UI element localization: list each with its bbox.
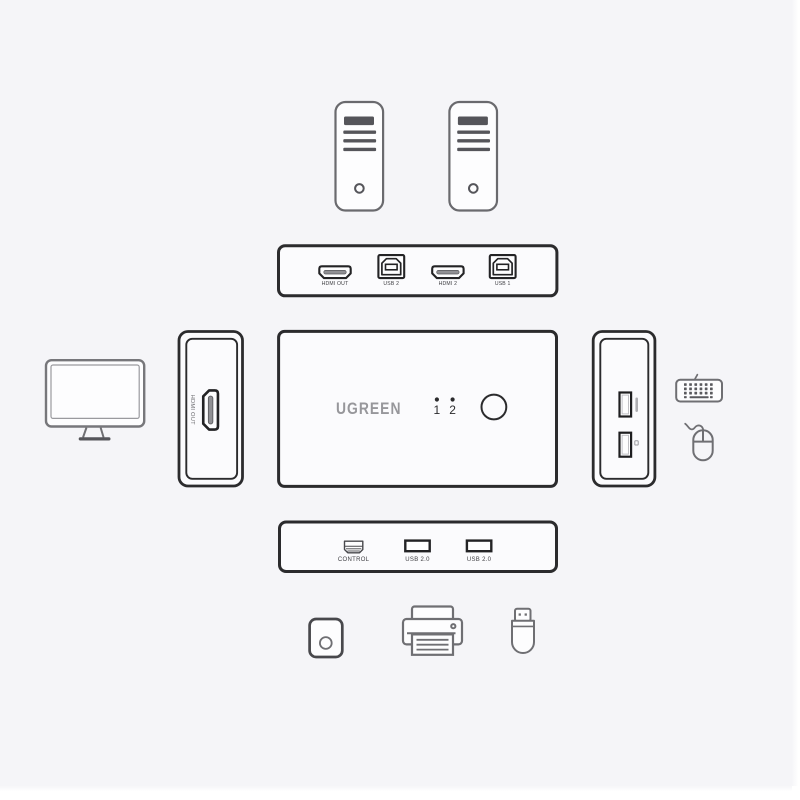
svg-text:UGREEN: UGREEN	[336, 400, 402, 418]
svg-text:USB 2: USB 2	[383, 281, 399, 287]
svg-text:USB 2.0: USB 2.0	[467, 557, 492, 563]
svg-text:USB 2.0: USB 2.0	[405, 557, 430, 563]
svg-text:HDMI 2: HDMI 2	[439, 281, 457, 287]
svg-text:2: 2	[449, 403, 456, 417]
svg-text:1: 1	[434, 403, 441, 417]
svg-text:CONTROL: CONTROL	[338, 557, 370, 563]
svg-text:HDMI OUT: HDMI OUT	[189, 395, 195, 426]
svg-text:HDMI OUT: HDMI OUT	[322, 281, 349, 287]
svg-text:USB 1: USB 1	[495, 281, 511, 287]
